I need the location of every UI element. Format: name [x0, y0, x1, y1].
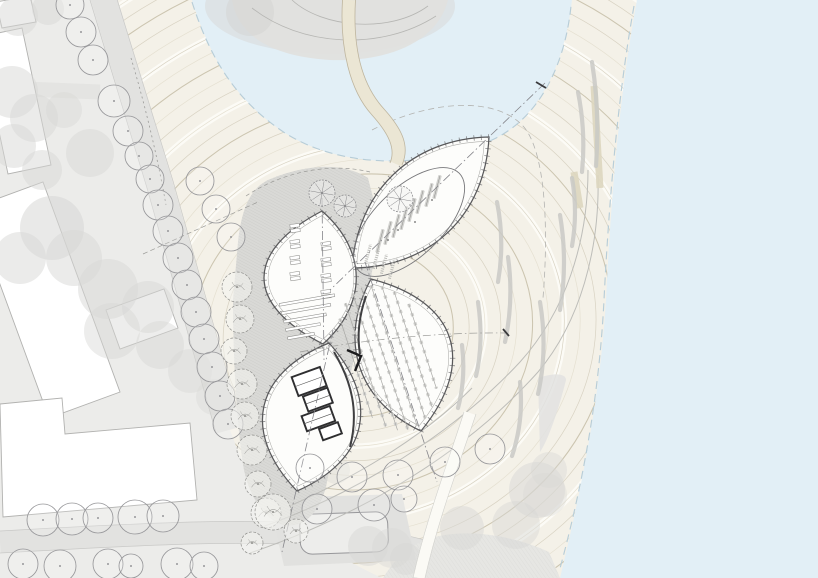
tree-canopy-blob	[22, 150, 62, 190]
furniture-dot	[431, 199, 433, 201]
tree-trunk-dot	[403, 498, 405, 500]
tree-circle	[186, 167, 214, 195]
tree-fluffy	[231, 402, 259, 430]
tree-fluffy	[241, 532, 263, 554]
furniture-dot	[397, 229, 399, 231]
tree-fluffy	[245, 471, 271, 497]
tree-trunk-dot	[257, 483, 259, 485]
tree-trunk-dot	[69, 4, 71, 6]
tree-circle	[189, 324, 219, 354]
tree-circle	[161, 548, 193, 578]
tree-circle	[163, 243, 193, 273]
tree-trunk-dot	[167, 230, 169, 232]
tree-trunk-dot	[186, 284, 188, 286]
tree-trunk-dot	[399, 198, 401, 200]
tree-circle-canopy	[44, 550, 76, 578]
tree-fluffy	[221, 338, 247, 364]
tree-fluffy	[222, 272, 252, 302]
tree-circle	[143, 190, 173, 220]
tree-circle	[217, 223, 245, 251]
tree-circle	[190, 552, 218, 578]
tree-trunk-dot	[134, 516, 136, 518]
furniture-dot	[387, 239, 389, 241]
tree-canopy-blob	[66, 129, 114, 177]
tree-circle	[358, 489, 390, 521]
tree-trunk-dot	[241, 383, 243, 385]
site-plan-canvas	[0, 0, 818, 578]
tree-trunk-dot	[149, 178, 151, 180]
tree-trunk-dot	[351, 476, 353, 478]
tree-circle	[202, 195, 230, 223]
tree-circle	[147, 500, 179, 532]
tree-fluffy	[284, 519, 308, 543]
tree-trunk-dot	[373, 504, 375, 506]
tree-trunk-dot	[309, 467, 311, 469]
tree-trunk-dot	[157, 204, 159, 206]
tree-circle	[337, 462, 367, 492]
tree-circle	[44, 550, 76, 578]
tree-circle	[27, 504, 59, 536]
tree-trunk-dot	[177, 257, 179, 259]
tree-circle	[383, 460, 413, 490]
tree-circle	[153, 216, 183, 246]
tree-trunk-dot	[113, 100, 115, 102]
tree-trunk-dot	[227, 423, 229, 425]
tree-conifer	[387, 186, 413, 212]
tree-trunk-dot	[195, 311, 197, 313]
tree-canopy-blob	[440, 506, 484, 550]
tree-trunk-dot	[230, 236, 232, 238]
tree-trunk-dot	[272, 511, 274, 513]
tree-trunk-dot	[42, 519, 44, 521]
tree-trunk-dot	[239, 318, 241, 320]
tree-circle	[98, 85, 130, 117]
tree-circle	[113, 116, 143, 146]
tree-circle	[430, 447, 460, 477]
tree-trunk-dot	[130, 565, 132, 567]
tree-trunk-dot	[233, 350, 235, 352]
tree-trunk-dot	[199, 180, 201, 182]
tree-trunk-dot	[138, 155, 140, 157]
tree-circle	[66, 17, 96, 47]
tree-circle	[83, 503, 113, 533]
tree-trunk-dot	[162, 515, 164, 517]
site-plan-image	[0, 0, 818, 578]
tree-trunk-dot	[295, 530, 297, 532]
tree-conifer	[334, 195, 356, 217]
tree-trunk-dot	[97, 517, 99, 519]
tree-trunk-dot	[22, 563, 24, 565]
tree-trunk-dot	[211, 366, 213, 368]
tree-circle	[391, 486, 417, 512]
tree-conifer	[309, 180, 335, 206]
tree-trunk-dot	[219, 395, 221, 397]
tree-trunk-dot	[176, 563, 178, 565]
tree-trunk-dot	[215, 208, 217, 210]
tree-trunk-dot	[489, 448, 491, 450]
tree-circle	[119, 554, 143, 578]
tree-circle	[181, 297, 211, 327]
tree-circle	[296, 454, 324, 482]
tree-canopy-blob	[372, 528, 412, 568]
tree-trunk-dot	[203, 338, 205, 340]
tree-trunk-dot	[316, 508, 318, 510]
tree-trunk-dot	[321, 192, 323, 194]
tree-trunk-dot	[203, 565, 205, 567]
tree-circle	[475, 434, 505, 464]
tree-fluffy	[227, 369, 257, 399]
tree-trunk-dot	[251, 449, 253, 451]
tree-circle	[136, 165, 164, 193]
furniture-dot	[414, 221, 416, 223]
tree-canopy-blob	[84, 303, 140, 359]
tree-trunk-dot	[92, 59, 94, 61]
tree-trunk-dot	[244, 415, 246, 417]
tree-circle	[172, 270, 202, 300]
tree-circle	[93, 549, 123, 578]
tree-canopy-blob	[46, 92, 82, 128]
tree-fluffy	[226, 305, 254, 333]
tree-trunk-dot	[444, 461, 446, 463]
tree-fluffy	[237, 435, 267, 465]
tree-trunk-dot	[80, 31, 82, 33]
tree-circle	[8, 549, 38, 578]
tree-circle	[302, 494, 332, 524]
tree-trunk-dot	[344, 205, 346, 207]
tree-trunk-dot	[236, 286, 238, 288]
tree-circle	[78, 45, 108, 75]
tree-trunk-dot	[59, 565, 61, 567]
tree-trunk-dot	[71, 518, 73, 520]
tree-trunk-dot	[397, 474, 399, 476]
tree-trunk-dot	[107, 563, 109, 565]
tree-trunk-dot	[251, 542, 253, 544]
tree-canopy-blob	[523, 473, 567, 517]
tree-trunk-dot	[127, 130, 129, 132]
